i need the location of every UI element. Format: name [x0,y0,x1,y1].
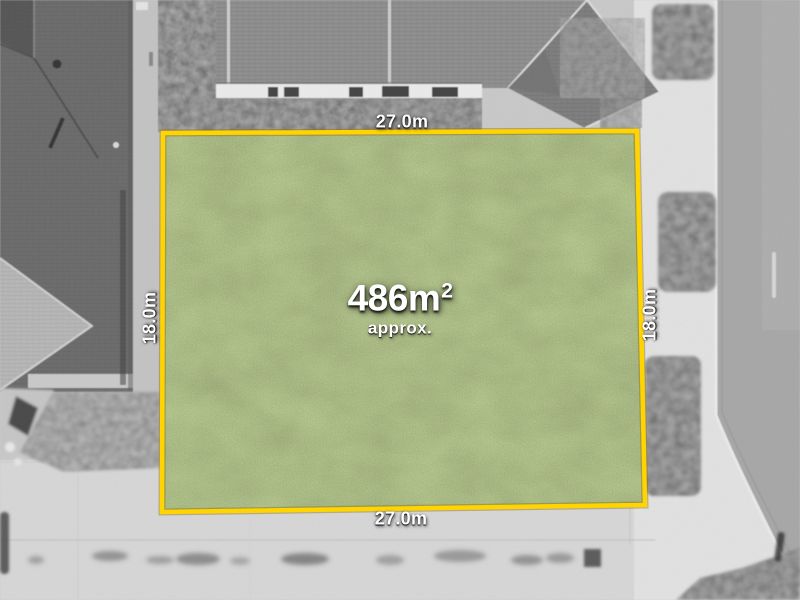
dimension-label-left: 18.0m [140,292,161,345]
lot-area-label: 486m2 approx. [348,280,453,339]
dimension-label-top: 27.0m [376,112,429,133]
lot-area-exponent: 2 [441,279,452,302]
lot-area-qualifier: approx. [348,319,453,339]
lot-area-value: 486m2 [348,280,453,317]
dimension-label-right: 18.0m [640,289,661,342]
land-listing-photo: 27.0m 27.0m 18.0m 18.0m 486m2 approx. [0,0,800,600]
dimension-label-bottom: 27.0m [375,509,428,530]
lot-area-number: 486m [348,278,441,319]
